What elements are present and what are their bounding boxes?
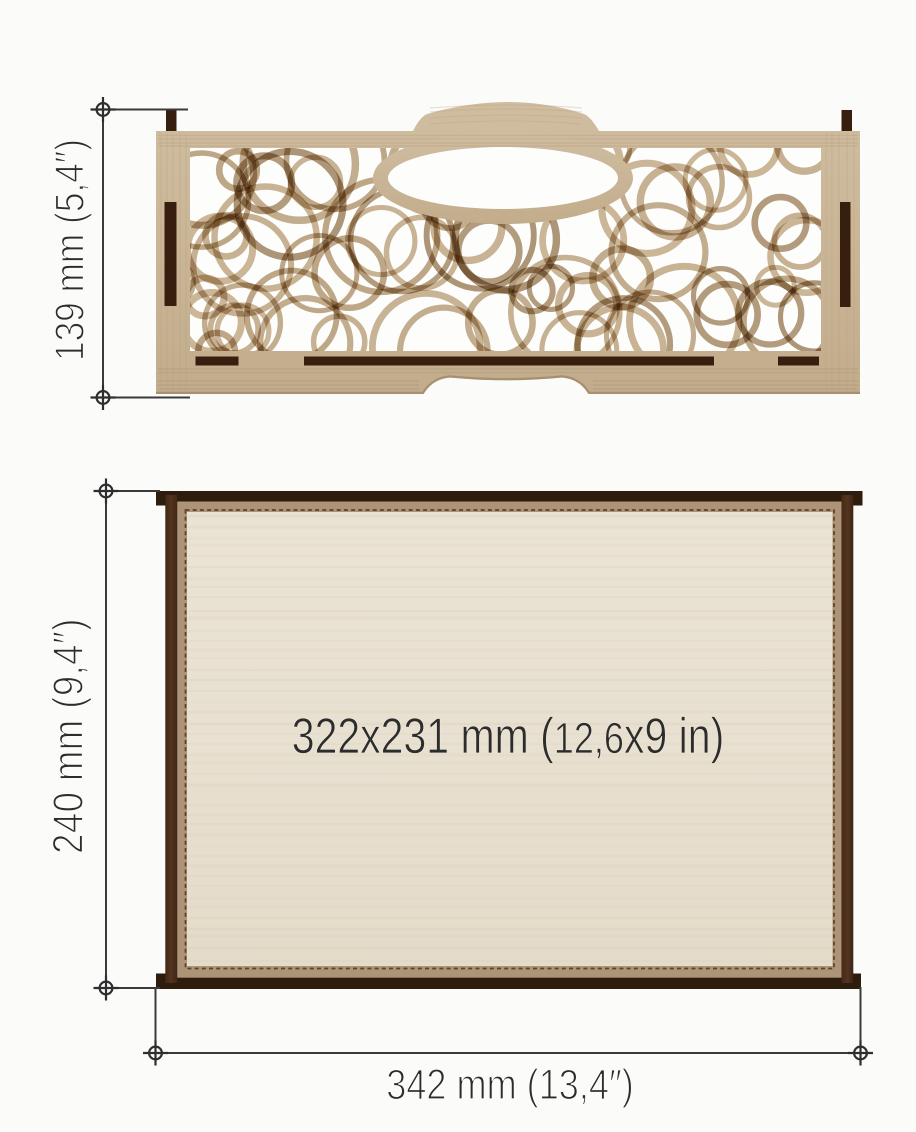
svg-text:240 mm (9,4″): 240 mm (9,4″): [45, 618, 92, 854]
svg-text:322x231 mm (12,6x9 in): 322x231 mm (12,6x9 in): [292, 708, 724, 764]
svg-text:139 mm (5,4″): 139 mm (5,4″): [47, 139, 93, 361]
svg-text:342 mm (13,4″): 342 mm (13,4″): [386, 1061, 634, 1109]
